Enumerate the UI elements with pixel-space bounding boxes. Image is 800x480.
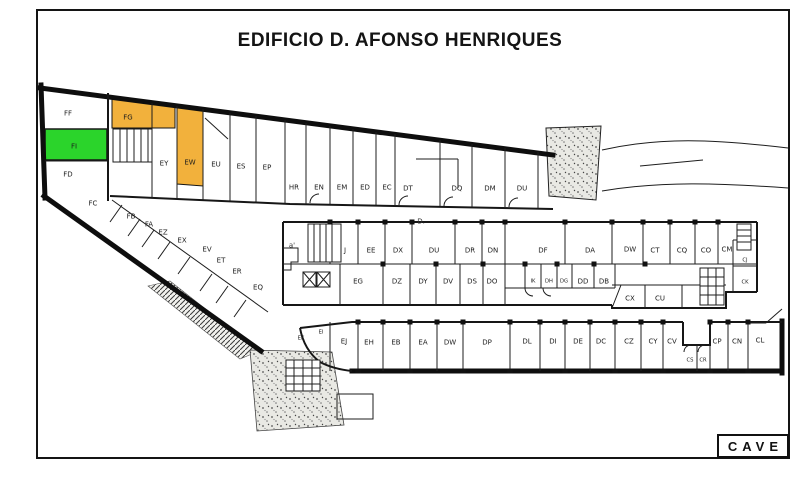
unit-label-co: CO: [701, 247, 712, 255]
unit-label-de: DE: [573, 338, 583, 346]
unit-label-du: DU: [429, 247, 440, 255]
unit-label-ee: EE: [367, 247, 376, 255]
column-marker: [356, 320, 361, 325]
unit-label-ds: DS: [467, 278, 477, 286]
column-marker: [610, 220, 615, 225]
column-marker: [563, 369, 568, 374]
plan-annotation: D.: [417, 218, 425, 226]
unit-label-fg: FG: [123, 114, 132, 122]
unit-label-cq: CQ: [677, 247, 688, 255]
plan-annotation: a': [289, 242, 295, 250]
column-marker: [356, 220, 361, 225]
unit-label-hr: HR: [289, 184, 299, 192]
unit-label-do: DO: [487, 278, 498, 286]
unit-label-ik: IK: [531, 279, 537, 285]
unit-label-cp: CP: [712, 338, 721, 346]
unit-label-ej: EJ: [341, 338, 348, 346]
column-marker: [453, 220, 458, 225]
unit-label-ey: EY: [160, 160, 169, 168]
column-marker: [613, 369, 618, 374]
column-marker: [639, 320, 644, 325]
unit-label-dg: DG: [560, 279, 568, 285]
level-badge: CAVE: [717, 434, 789, 458]
unit-label-ew: EW: [184, 159, 195, 167]
column-marker: [503, 220, 508, 225]
column-marker: [555, 262, 560, 267]
partition-walls: [45, 103, 788, 371]
unit-ew-highlight: [177, 107, 203, 186]
unit-label-dn: DN: [488, 247, 499, 255]
unit-label-es: ES: [237, 163, 246, 171]
column-marker: [328, 220, 333, 225]
column-marker: [563, 320, 568, 325]
unit-label-di: DI: [549, 338, 556, 346]
unit-label-fi: FI: [71, 143, 77, 151]
unit-label-ei: EI: [319, 330, 324, 336]
unit-label-ed: ED: [360, 184, 370, 192]
unit-label-ep: EP: [263, 164, 272, 172]
unit-label-et: ET: [217, 257, 226, 265]
unit-label-eg: EG: [353, 278, 363, 286]
column-marker: [661, 320, 666, 325]
column-marker: [746, 369, 751, 374]
column-marker: [410, 220, 415, 225]
column-marker: [381, 320, 386, 325]
unit-label-cu: CU: [655, 295, 665, 303]
unit-label-dy: DY: [418, 278, 428, 286]
unit-label-cl: CL: [756, 337, 765, 345]
floorplan-page: EDIFICIO D. AFONSO HENRIQUES: [0, 0, 800, 480]
unit-label-cn: CN: [732, 338, 742, 346]
column-marker: [508, 320, 513, 325]
unit-label-dl: DL: [522, 338, 531, 346]
unit-label-ck: CK: [741, 280, 749, 286]
unit-label-fa: FA: [145, 221, 153, 229]
column-marker: [592, 262, 597, 267]
column-marker: [523, 262, 528, 267]
column-marker: [708, 320, 713, 325]
unit-label-fd: FD: [63, 171, 72, 179]
unit-label-eh: EH: [364, 339, 374, 347]
unit-label-dm: DM: [484, 185, 495, 193]
unit-label-dt: DT: [403, 185, 413, 193]
drawing-border: [37, 10, 789, 458]
unit-label-du: DU: [517, 185, 528, 193]
column-marker: [746, 320, 751, 325]
column-marker: [508, 369, 513, 374]
stone-wall-topright: [546, 126, 601, 200]
floor-plan: FFFGFIFDEYEWEUESEPHRENEMEDECDTDQDMDUFCFB…: [0, 0, 800, 480]
column-marker: [356, 369, 361, 374]
unit-label-cj: CJ: [742, 258, 748, 264]
unit-label-ea: EA: [418, 339, 427, 347]
unit-label-fb: FB: [127, 213, 136, 221]
unit-label-fc: FC: [89, 200, 98, 208]
column-marker: [661, 369, 666, 374]
unit-label-db: DB: [599, 278, 609, 286]
column-marker: [383, 220, 388, 225]
column-marker: [461, 320, 466, 325]
unit-label-eb: EB: [391, 339, 400, 347]
column-marker: [435, 320, 440, 325]
column-marker: [588, 320, 593, 325]
column-marker: [481, 262, 486, 267]
unit-label-da: DA: [585, 247, 595, 255]
unit-label-cv: CV: [667, 338, 677, 346]
unit-label-eq: EQ: [253, 284, 263, 292]
unit-label-j: J: [343, 247, 346, 255]
unit-label-ez: EZ: [158, 229, 167, 237]
column-marker: [693, 220, 698, 225]
unit-label-ex: EX: [177, 237, 186, 245]
unit-label-em: EM: [337, 184, 347, 192]
unit-label-dx: DX: [393, 247, 403, 255]
unit-label-df: DF: [538, 247, 547, 255]
unit-label-dd: DD: [578, 278, 589, 286]
column-marker: [538, 320, 543, 325]
column-marker: [461, 369, 466, 374]
unit-label-dh: DH: [545, 279, 553, 285]
stairs: [113, 129, 751, 419]
unit-label-cm: CM: [722, 246, 733, 254]
unit-label-ct: CT: [650, 247, 660, 255]
column-marker: [434, 262, 439, 267]
unit-label-dp: DP: [482, 339, 492, 347]
unit-label-ec: EC: [382, 184, 391, 192]
unit-label-dw: DW: [624, 246, 636, 254]
column-marker: [408, 320, 413, 325]
unit-label-ff: FF: [64, 110, 72, 118]
unit-label-ek: EK: [298, 336, 305, 342]
column-marker: [643, 262, 648, 267]
unit-label-dq: DQ: [452, 185, 463, 193]
unit-label-en: EN: [314, 184, 324, 192]
unit-label-cx: CX: [625, 295, 635, 303]
unit-label-cr: CR: [699, 358, 707, 364]
column-marker: [408, 369, 413, 374]
unit-label-dw: DW: [444, 339, 456, 347]
column-marker: [716, 220, 721, 225]
unit-label-eu: EU: [211, 161, 221, 169]
column-marker: [480, 220, 485, 225]
unit-label-ev: EV: [202, 246, 211, 254]
unit-label-dv: DV: [443, 278, 453, 286]
unit-label-cz: CZ: [624, 338, 634, 346]
unit-label-cs: CS: [687, 358, 694, 364]
unit-label-dz: DZ: [392, 278, 402, 286]
column-marker: [726, 320, 731, 325]
column-marker: [668, 220, 673, 225]
column-marker: [613, 320, 618, 325]
unit-label-dc: DC: [596, 338, 606, 346]
unit-label-cy: CY: [648, 338, 658, 346]
column-marker: [563, 220, 568, 225]
slope-hatch-bottomleft: [148, 281, 259, 359]
unit-label-er: ER: [232, 268, 241, 276]
column-marker: [641, 220, 646, 225]
column-marker: [708, 369, 713, 374]
column-marker: [381, 262, 386, 267]
unit-label-dr: DR: [465, 247, 475, 255]
